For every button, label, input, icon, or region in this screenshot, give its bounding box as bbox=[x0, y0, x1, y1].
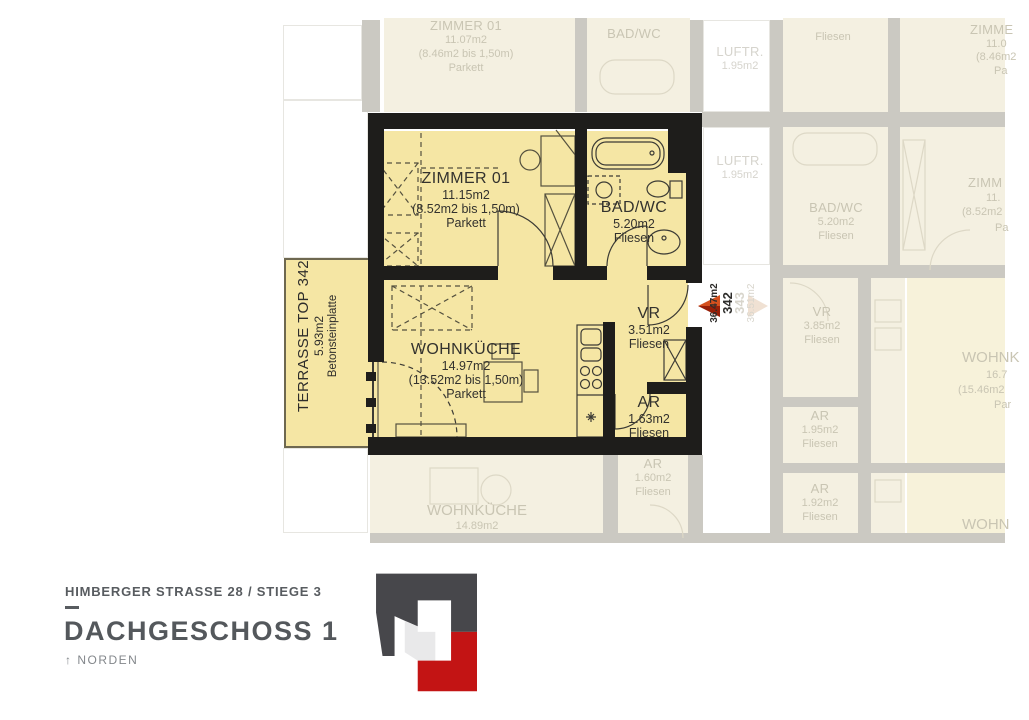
entry-marker-layer bbox=[0, 0, 1029, 720]
north-indicator: ↑ NORDEN bbox=[65, 653, 138, 667]
marker-faded-area: 36.51m2 bbox=[744, 263, 760, 343]
company-logo-icon bbox=[364, 568, 477, 694]
north-label: NORDEN bbox=[77, 653, 138, 667]
north-arrow-icon: ↑ bbox=[65, 653, 73, 667]
page-title: DACHGESCHOSS 1 bbox=[64, 616, 339, 647]
address-label: HIMBERGER STRASSE 28 / STIEGE 3 bbox=[65, 584, 322, 599]
logo-light-shape bbox=[405, 621, 436, 661]
divider-dash bbox=[65, 606, 79, 609]
floorplan-page: ZIMMER 01 11.07m2 (8.46m2 bis 1,50m) Par… bbox=[0, 0, 1029, 720]
